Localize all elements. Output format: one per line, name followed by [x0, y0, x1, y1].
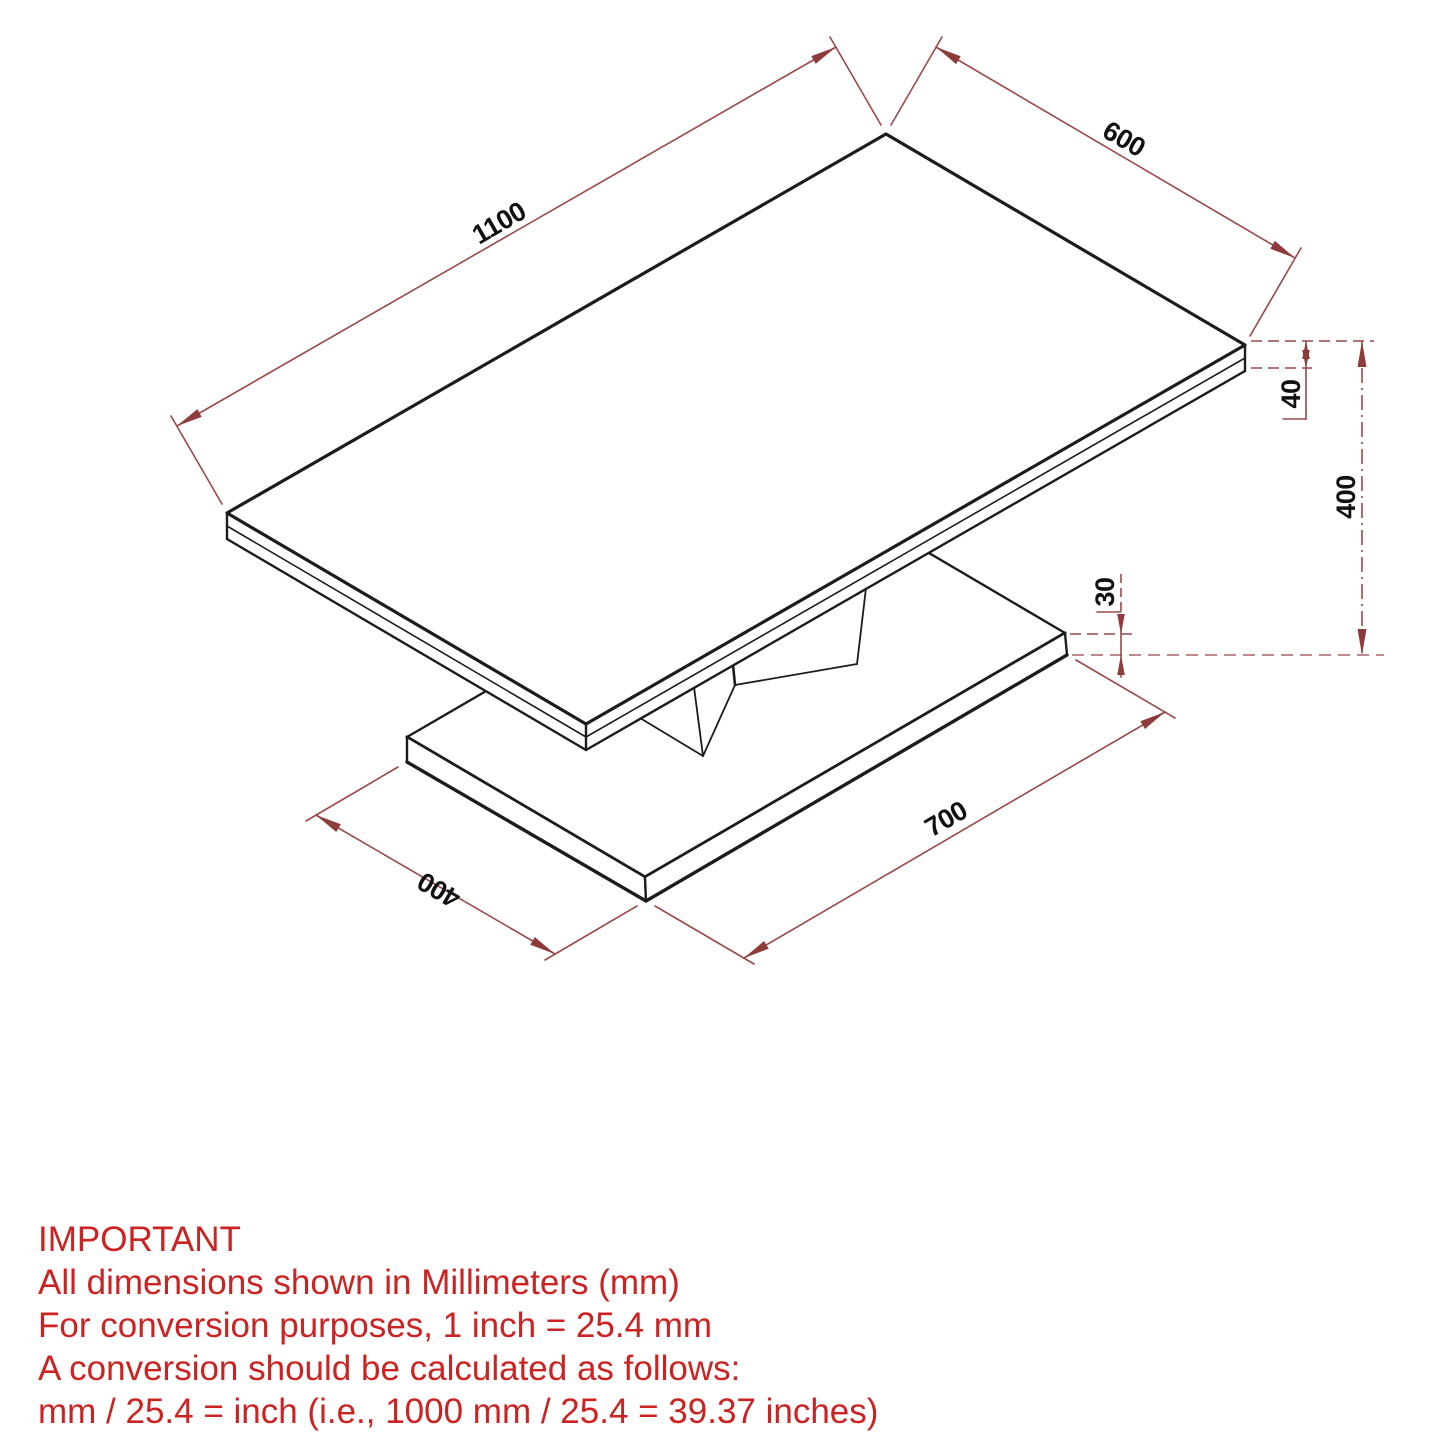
- arrowhead: [1117, 655, 1125, 675]
- dimension-overall-height: 400: [1331, 341, 1367, 655]
- dim-label-base-thickness: 30: [1090, 577, 1120, 606]
- table-top: [227, 134, 1245, 750]
- dimension-base-thickness: 30: [1070, 574, 1384, 677]
- dim-label-overall-height: 400: [1331, 475, 1361, 519]
- extension-line: [891, 37, 942, 125]
- arrowhead: [316, 815, 341, 832]
- notice-line: A conversion should be calculated as fol…: [38, 1347, 878, 1390]
- notice-line: mm / 25.4 = inch (i.e., 1000 mm / 25.4 =…: [38, 1390, 878, 1433]
- extension-line: [655, 906, 754, 964]
- notice-title: IMPORTANT: [38, 1218, 878, 1261]
- arrowhead: [1117, 614, 1125, 634]
- extension-line: [171, 416, 222, 504]
- arrowhead: [1140, 712, 1165, 729]
- arrowhead: [936, 47, 961, 64]
- dim-label-top-thickness: 40: [1276, 379, 1306, 408]
- extension-line: [545, 906, 637, 960]
- arrowhead: [1270, 241, 1295, 258]
- tabletop-top-face: [227, 134, 1245, 724]
- extension-line: [306, 767, 398, 821]
- dim-label-base-depth: 400: [413, 866, 466, 914]
- extension-line: [830, 37, 881, 125]
- notice-line: For conversion purposes, 1 inch = 25.4 m…: [38, 1304, 878, 1347]
- dim-label-top-length: 1100: [467, 196, 531, 250]
- arrowhead: [1358, 341, 1367, 367]
- dim-label-top-depth: 600: [1098, 115, 1151, 163]
- extension-line: [1250, 248, 1301, 336]
- extension-line: [1076, 660, 1175, 718]
- arrowhead: [530, 937, 555, 954]
- units-notice: IMPORTANT All dimensions shown in Millim…: [38, 1218, 878, 1433]
- arrowhead: [177, 409, 202, 426]
- dimension-top-thickness: 40: [1251, 341, 1374, 419]
- arrowhead: [811, 47, 836, 64]
- notice-line: All dimensions shown in Millimeters (mm): [38, 1261, 878, 1304]
- dim-label-base-length: 700: [920, 795, 973, 843]
- arrowhead: [744, 941, 769, 958]
- arrowhead: [1358, 629, 1367, 655]
- page: 1100 600 40 400: [0, 0, 1440, 1440]
